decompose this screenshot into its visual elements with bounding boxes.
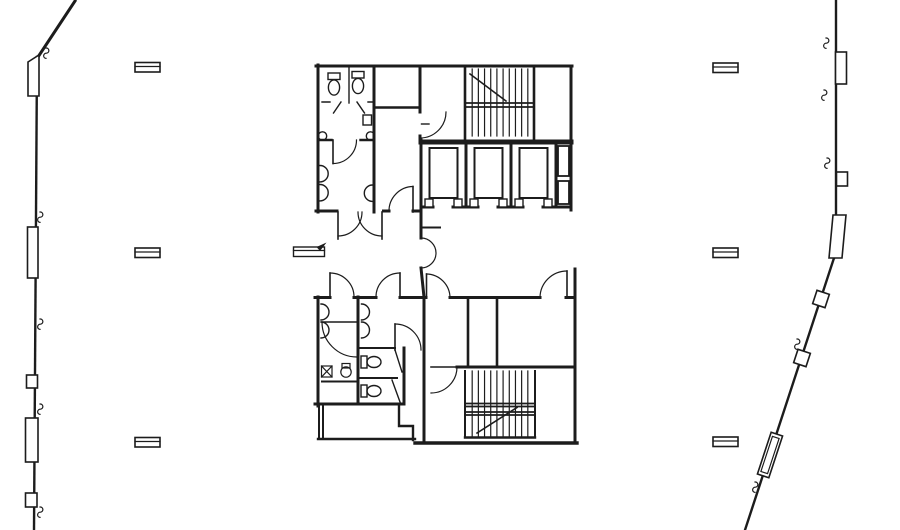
- door-jamb-tab: [544, 199, 552, 207]
- column: [836, 52, 847, 84]
- column-marker: [713, 248, 738, 258]
- column-marker: [135, 248, 160, 258]
- column-marker: [713, 437, 738, 447]
- column-marker: [713, 63, 738, 73]
- column: [26, 418, 39, 462]
- column-marker-box: [713, 63, 738, 73]
- door-jamb-tab: [470, 199, 478, 207]
- column-marker-box: [135, 248, 160, 258]
- column: [837, 172, 848, 186]
- column-marker-box: [713, 248, 738, 258]
- column: [28, 55, 39, 96]
- door-jamb-tab: [499, 199, 507, 207]
- floor-plan-document: [0, 0, 900, 530]
- door-jamb-tab: [515, 199, 523, 207]
- column-marker: [135, 63, 160, 73]
- column: [26, 493, 38, 507]
- door-jamb-tab: [454, 199, 462, 207]
- floor-plan-canvas: [0, 0, 900, 530]
- column-marker: [135, 438, 160, 448]
- column: [28, 227, 39, 278]
- column: [27, 375, 38, 388]
- column-marker-box: [713, 437, 738, 447]
- door-jamb-tab: [425, 199, 433, 207]
- column-marker-box: [135, 438, 160, 448]
- column-marker-box: [135, 63, 160, 73]
